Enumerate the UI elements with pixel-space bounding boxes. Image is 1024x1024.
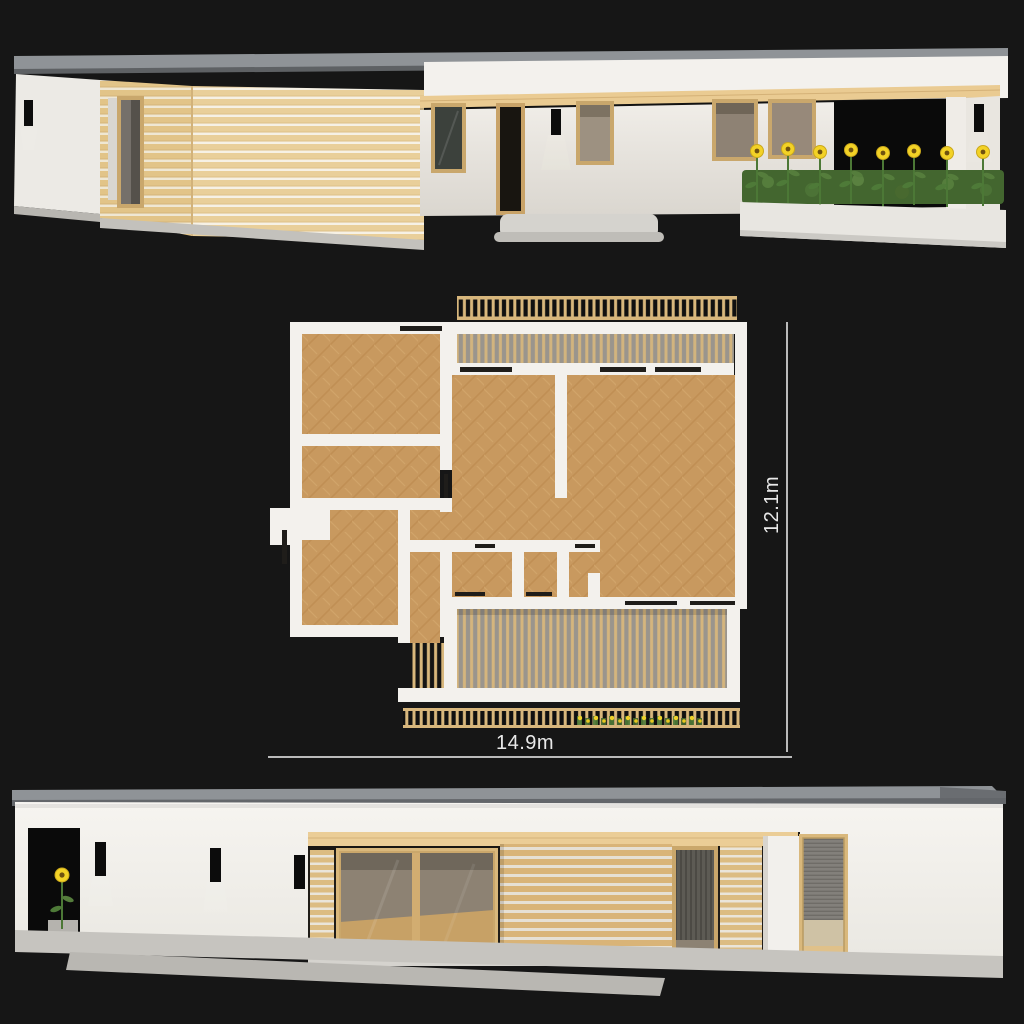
wall-sconce — [24, 100, 33, 126]
width-dimension-label: 14.9m — [485, 731, 565, 755]
room-study — [302, 446, 440, 498]
window — [576, 101, 614, 165]
left-end-wall — [14, 74, 100, 222]
room-living — [567, 375, 735, 597]
side-passage — [28, 828, 80, 934]
room-bedroom-3 — [452, 375, 555, 498]
slat-screen — [720, 846, 762, 960]
window-blinds — [799, 834, 848, 958]
room-wc — [524, 552, 557, 597]
dimension-line-width — [268, 756, 792, 758]
room-corridor — [410, 510, 440, 645]
terrace-column — [763, 836, 801, 962]
top-fence — [457, 296, 737, 320]
terrace-deck — [410, 609, 727, 688]
dimension-line-depth — [786, 322, 788, 752]
balcony-deck — [457, 334, 734, 363]
entry-door — [282, 530, 287, 564]
glass-door-blinds — [672, 846, 718, 960]
room-bath — [452, 552, 512, 597]
entry-door — [496, 103, 525, 215]
pergola-beam — [308, 832, 798, 846]
depth-dimension-label: 12.1m — [760, 465, 784, 545]
narrow-window — [108, 96, 144, 208]
exterior-render-front — [0, 0, 1024, 260]
entry-window — [431, 103, 466, 173]
room-bedroom-1 — [302, 334, 440, 434]
wood-clad-volume — [100, 80, 424, 250]
exterior-render-rear — [0, 760, 1024, 1024]
bottom-fence — [403, 708, 740, 728]
floor-plan — [0, 290, 1024, 760]
architectural-visualization: 12.1m 14.9m — [0, 0, 1024, 1024]
